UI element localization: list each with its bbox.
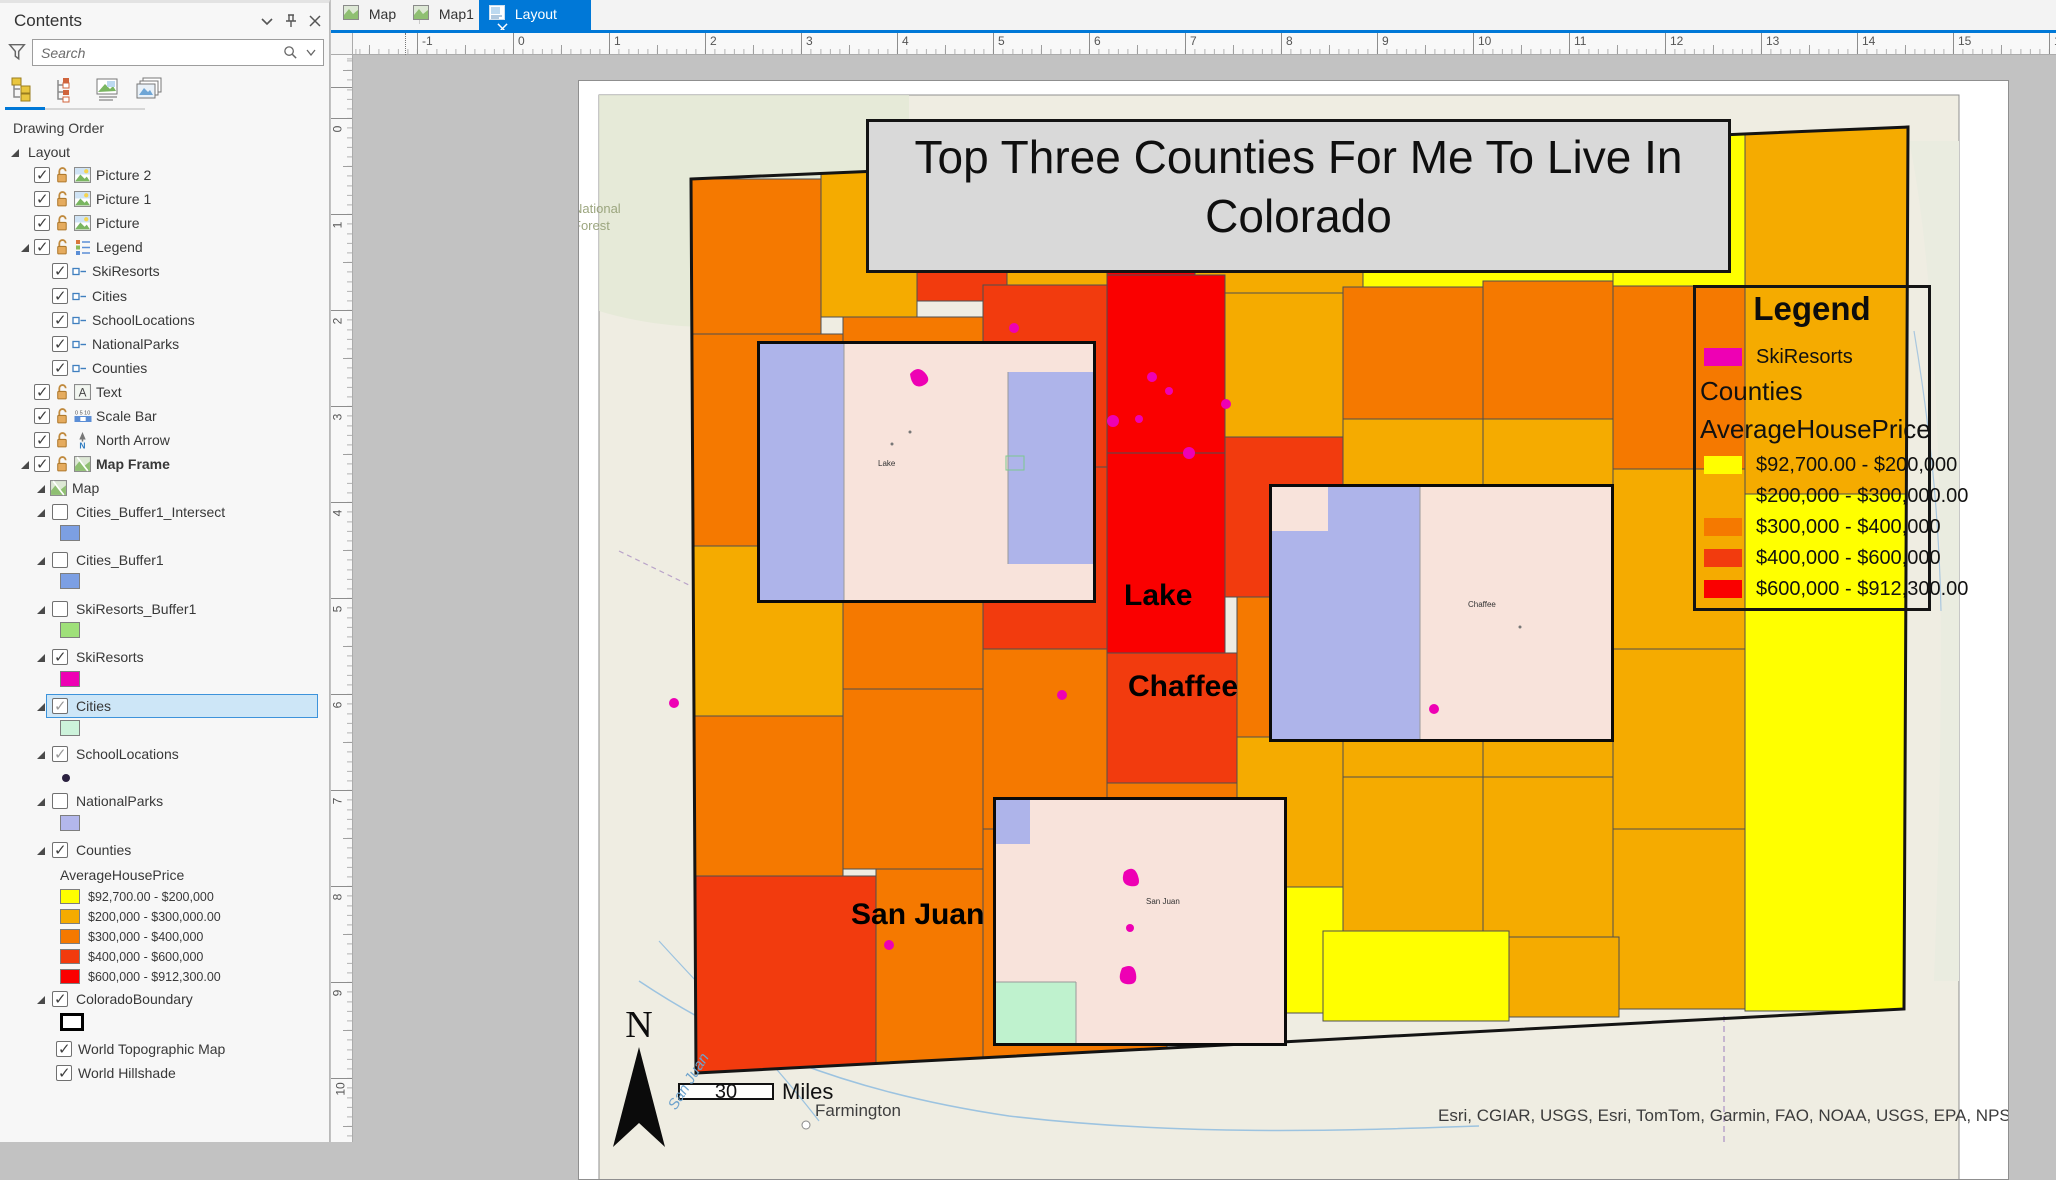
tree-item-world-topographic-map[interactable]: World Topographic Map <box>0 1039 330 1061</box>
tree-item-map[interactable]: Map <box>0 478 330 500</box>
tree-item-cities[interactable]: Cities <box>0 696 330 718</box>
tree-item-cities-buffer1[interactable]: Cities_Buffer1 <box>0 550 330 572</box>
county-label-chaffee: Chaffee <box>1128 670 1238 704</box>
class-row[interactable]: $400,000 - $600,000 <box>0 947 330 969</box>
layout-icon <box>489 5 505 20</box>
city-point <box>802 1121 810 1129</box>
unlock-icon[interactable] <box>55 384 70 401</box>
expand-icon[interactable] <box>36 797 46 807</box>
legend-class-row: $200,000 - $300,000.00 <box>1704 485 1968 508</box>
tree-item-legend-cities[interactable]: Cities <box>0 286 330 308</box>
inset-county-label: San Juan <box>1146 897 1180 906</box>
visibility-checkbox[interactable] <box>52 312 68 328</box>
tree-item-north-arrow[interactable]: N North Arrow <box>0 430 330 452</box>
class-swatch[interactable] <box>60 929 80 944</box>
unlock-icon[interactable] <box>55 191 70 208</box>
map-icon <box>74 456 91 472</box>
visibility-checkbox[interactable] <box>52 504 68 520</box>
expand-icon[interactable] <box>36 702 46 712</box>
tree-item-legend[interactable]: Legend <box>0 237 330 259</box>
tree-item-picture1[interactable]: Picture 1 <box>0 189 330 211</box>
unlock-icon[interactable] <box>55 215 70 232</box>
visibility-checkbox[interactable] <box>52 263 68 279</box>
ski-blob <box>1120 966 1137 984</box>
picture-icon <box>74 215 91 231</box>
expand-icon[interactable] <box>36 605 46 615</box>
legend-title: Legend <box>1696 290 1928 328</box>
skiresorts-buffer1-swatch[interactable] <box>60 622 80 638</box>
map-title[interactable]: Top Three Counties For Me To Live In Col… <box>866 119 1731 273</box>
class-row[interactable]: $200,000 - $300,000.00 <box>0 907 330 929</box>
active-tool-underline <box>5 107 45 110</box>
text-icon: A <box>74 384 91 400</box>
schoollocations-point-swatch[interactable] <box>62 774 70 782</box>
tree-item-world-hillshade[interactable]: World Hillshade <box>0 1063 330 1085</box>
visibility-checkbox[interactable] <box>34 408 50 424</box>
inset-county-label: Chaffee <box>1468 600 1496 609</box>
legend-icon <box>75 239 91 255</box>
visibility-checkbox[interactable] <box>34 432 50 448</box>
inset-map-san-juan[interactable]: San Juan <box>993 797 1287 1046</box>
tree-item-skiresorts[interactable]: SkiResorts <box>0 647 330 669</box>
close-icon[interactable] <box>306 13 324 29</box>
unlock-icon[interactable] <box>55 456 70 473</box>
tree-item-schoollocations[interactable]: SchoolLocations <box>0 744 330 766</box>
legend-class-row: $600,000 - $912,300.00 <box>1704 578 1968 601</box>
visibility-checkbox[interactable] <box>34 456 50 472</box>
tree-item-nationalparks[interactable]: NationalParks <box>0 791 330 813</box>
expand-icon[interactable] <box>10 148 20 158</box>
map-icon <box>413 5 429 20</box>
search-input[interactable] <box>32 39 324 66</box>
visibility-checkbox[interactable] <box>52 336 68 352</box>
visibility-checkbox[interactable] <box>34 191 50 207</box>
symbol-swatch-row[interactable] <box>0 767 330 789</box>
chevron-down-icon[interactable] <box>258 13 276 29</box>
tree-item-legend-nationalparks[interactable]: NationalParks <box>0 334 330 356</box>
toolbar-underline <box>45 108 145 110</box>
legend-item-icon <box>72 316 87 327</box>
class-row[interactable]: $300,000 - $400,000 <box>0 927 330 949</box>
visibility-checkbox[interactable] <box>52 552 68 568</box>
north-arrow[interactable]: N <box>603 1003 675 1143</box>
inset-map-lake[interactable]: Lake <box>757 341 1096 603</box>
visibility-checkbox[interactable] <box>56 1041 72 1057</box>
skiresorts-swatch[interactable] <box>60 671 80 687</box>
symbol-swatch-row[interactable] <box>0 525 330 547</box>
tree-item-text[interactable]: A Text <box>0 382 330 404</box>
class-swatch[interactable] <box>60 889 80 904</box>
scale-value: 30 <box>715 1081 737 1103</box>
map-icon <box>343 5 359 20</box>
symbol-swatch-row[interactable] <box>0 573 330 595</box>
expand-icon[interactable] <box>36 556 46 566</box>
visibility-checkbox[interactable] <box>52 601 68 617</box>
city-label: Farmington <box>815 1101 901 1121</box>
ruler-corner <box>331 33 353 55</box>
search-row <box>6 39 324 67</box>
visibility-checkbox[interactable] <box>52 649 68 665</box>
forest-label: National Forest <box>578 201 637 235</box>
symbol-swatch-row[interactable] <box>0 671 330 693</box>
unlock-icon[interactable] <box>55 408 70 425</box>
expand-icon[interactable] <box>36 750 46 760</box>
layout-page[interactable]: Top Three Counties For Me To Live In Col… <box>578 80 2009 1180</box>
expand-icon[interactable] <box>36 653 46 663</box>
cities-buffer1-intersect-swatch[interactable] <box>60 525 80 541</box>
drawing-order-heading: Drawing Order <box>13 120 104 136</box>
visibility-checkbox[interactable] <box>52 698 68 714</box>
expand-icon[interactable] <box>36 508 46 518</box>
svg-text:0 5 10: 0 5 10 <box>75 411 90 417</box>
symbol-swatch-row[interactable] <box>0 815 330 837</box>
legend-class-row: $92,700.00 - $200,000 <box>1704 454 1957 477</box>
legend-class-row: $400,000 - $600,000 <box>1704 547 1941 570</box>
symbol-swatch-row[interactable] <box>0 622 330 644</box>
expand-icon[interactable] <box>36 484 46 494</box>
picture-icon <box>74 167 91 183</box>
visibility-checkbox[interactable] <box>34 167 50 183</box>
legend-swatch <box>1704 456 1742 474</box>
list-by-drawing-order-icon[interactable] <box>8 75 38 105</box>
list-by-source-icon[interactable] <box>50 75 80 105</box>
tree-item-counties[interactable]: Counties <box>0 840 330 862</box>
legend-class-row: $300,000 - $400,000 <box>1704 516 1941 539</box>
north-arrow-icon: N <box>76 432 89 449</box>
tab-map[interactable]: Map <box>333 0 408 30</box>
visibility-checkbox[interactable] <box>52 360 68 376</box>
expand-icon[interactable] <box>20 243 30 253</box>
legend-field-heading: AverageHousePrice <box>1700 414 1931 445</box>
tab-map1[interactable]: Map1 <box>403 0 486 30</box>
pin-icon[interactable] <box>282 13 300 29</box>
legend-item-icon <box>72 292 87 303</box>
scale-bar-icon: 0 5 10 <box>74 408 93 424</box>
visibility-checkbox[interactable] <box>52 288 68 304</box>
tree-item-map-frame[interactable]: Map Frame <box>0 454 330 476</box>
class-row[interactable]: $92,700.00 - $200,000 <box>0 887 330 909</box>
tree-item-skiresorts-buffer1[interactable]: SkiResorts_Buffer1 <box>0 599 330 621</box>
view-tab-bar: Map Map1 Layout <box>331 0 2056 30</box>
search-icon[interactable] <box>283 45 298 60</box>
ruler-guide-line <box>405 33 406 55</box>
class-swatch[interactable] <box>60 949 80 964</box>
legend-counties-heading: Counties <box>1700 376 1803 407</box>
north-arrow-glyph <box>603 1047 675 1147</box>
layout-canvas[interactable]: Top Three Counties For Me To Live In Col… <box>353 55 2056 1142</box>
tree-item-legend-schoollocations[interactable]: SchoolLocations <box>0 310 330 332</box>
class-row[interactable]: $600,000 - $912,300.00 <box>0 967 330 989</box>
county-label-san-juan: San Juan <box>851 898 984 932</box>
panel-title: Contents <box>14 11 82 31</box>
visibility-checkbox[interactable] <box>34 239 50 255</box>
inset-county-label: Lake <box>878 459 896 468</box>
visibility-checkbox[interactable] <box>52 991 68 1007</box>
contents-panel: Contents Drawing Order Layout Picture 2 … <box>0 0 330 1142</box>
svg-text:N: N <box>79 440 85 449</box>
svg-text:A: A <box>79 386 87 399</box>
cities-buffer1-swatch[interactable] <box>60 573 80 589</box>
vertical-ruler: 0 1 2 3 4 5 6 7 8 9 10 <box>331 55 353 1142</box>
horizontal-ruler: -1 0 1 2 3 4 5 6 7 8 9 10 11 12 13 14 15… <box>353 33 2056 55</box>
legend-item-icon <box>72 340 87 351</box>
nationalparks-swatch[interactable] <box>60 815 80 831</box>
unlock-icon[interactable] <box>55 432 70 449</box>
visibility-checkbox[interactable] <box>52 793 68 809</box>
tree-item-picture[interactable]: Picture <box>0 213 330 235</box>
visibility-checkbox[interactable] <box>52 746 68 762</box>
list-by-editing-icon[interactable] <box>135 75 165 105</box>
tree-item-legend-skiresorts[interactable]: SkiResorts <box>0 261 330 283</box>
unlock-icon[interactable] <box>55 167 70 184</box>
visibility-checkbox[interactable] <box>34 384 50 400</box>
legend-swatch <box>1704 518 1742 536</box>
visibility-checkbox[interactable] <box>52 842 68 858</box>
cities-swatch[interactable] <box>60 720 80 736</box>
picture-icon <box>74 191 91 207</box>
tree-item-scale-bar[interactable]: 0 5 10 Scale Bar <box>0 406 330 428</box>
legend-item-icon <box>72 364 87 375</box>
tree-item-coloradoboundary[interactable]: ColoradoBoundary <box>0 989 330 1011</box>
class-swatch[interactable] <box>60 969 80 984</box>
symbol-swatch-row[interactable] <box>0 720 330 742</box>
unlock-icon[interactable] <box>55 239 70 256</box>
county-label-lake: Lake <box>1124 579 1192 613</box>
expand-icon[interactable] <box>36 995 46 1005</box>
panel-toolbar <box>8 75 173 109</box>
filter-icon[interactable] <box>8 43 26 61</box>
map-legend[interactable]: Legend SkiResorts Counties AverageHouseP… <box>1693 285 1931 611</box>
attribution-text: Esri, CGIAR, USGS, Esri, TomTom, Garmin,… <box>1438 1106 1998 1126</box>
legend-swatch <box>1704 549 1742 567</box>
visibility-checkbox[interactable] <box>34 215 50 231</box>
class-swatch[interactable] <box>60 909 80 924</box>
legend-swatch <box>1704 348 1742 366</box>
north-arrow-letter: N <box>603 1003 675 1047</box>
legend-swatch <box>1704 487 1742 505</box>
coloradoboundary-swatch[interactable] <box>60 1013 84 1031</box>
search-chevron-icon[interactable] <box>306 49 316 56</box>
inset-map-chaffee[interactable]: Chaffee <box>1269 484 1614 742</box>
tab-layout[interactable]: Layout <box>479 0 591 30</box>
list-by-selection-icon[interactable] <box>93 75 123 105</box>
expand-icon[interactable] <box>36 846 46 856</box>
tree-item-picture2[interactable]: Picture 2 <box>0 165 330 187</box>
ski-blob <box>1429 704 1439 714</box>
tree-item-legend-counties[interactable]: Counties <box>0 358 330 380</box>
map-icon <box>50 480 67 496</box>
symbol-swatch-row[interactable] <box>0 1013 330 1035</box>
ski-blob <box>1126 924 1134 932</box>
visibility-checkbox[interactable] <box>56 1065 72 1081</box>
counties-field-label: AverageHousePrice <box>0 865 330 887</box>
tree-item-cities-buffer1-intersect[interactable]: Cities_Buffer1_Intersect <box>0 502 330 524</box>
tree-item-layout[interactable]: Layout <box>0 142 330 164</box>
legend-swatch <box>1704 580 1742 598</box>
expand-icon[interactable] <box>20 460 30 470</box>
legend-skiresorts-row: SkiResorts <box>1704 346 1853 369</box>
legend-item-icon <box>72 267 87 278</box>
